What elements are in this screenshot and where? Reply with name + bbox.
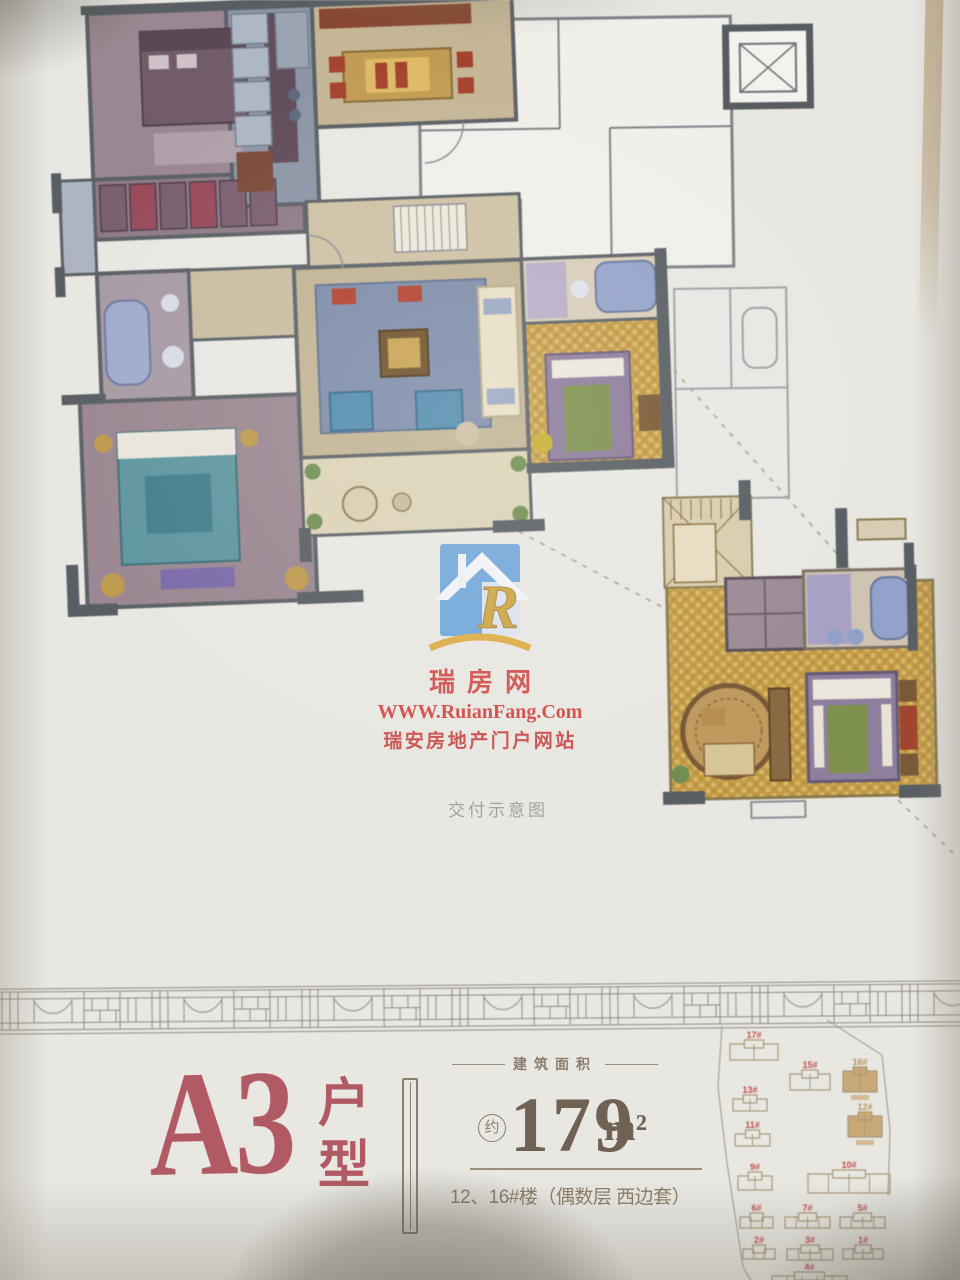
site-map-building: 16# <box>843 1057 877 1100</box>
horizontal-rule <box>470 1168 702 1170</box>
site-map-building-label: 7# <box>802 1203 812 1213</box>
site-map-building-label: 11# <box>745 1120 760 1130</box>
divider-column <box>402 1078 418 1234</box>
site-map-building-label: 1# <box>858 1235 868 1245</box>
site-map-building-label: 4# <box>804 1262 814 1272</box>
watermark-site-url: WWW.RuianFang.Com <box>366 701 594 724</box>
site-map-building: 1# <box>843 1235 883 1259</box>
dash-rule <box>452 1064 505 1065</box>
site-map-building: 7# <box>785 1203 830 1228</box>
floor-plan-drawing <box>0 0 960 900</box>
elevator-shaft-icon <box>725 27 810 106</box>
site-map-building-label: 9# <box>750 1162 760 1172</box>
watermark-tagline: 瑞安房地产门户网站 <box>366 726 594 753</box>
site-map-building: 13# <box>733 1085 767 1111</box>
watermark: R 瑞房网 WWW.RuianFang.Com 瑞安房地产门户网站 <box>366 542 594 753</box>
area-unit: m² <box>604 1106 647 1150</box>
site-map-building-label: 13# <box>742 1085 757 1095</box>
site-map-building: 4# <box>772 1262 847 1280</box>
site-map-building-label: 15# <box>802 1060 817 1070</box>
site-map-building: 11# <box>735 1120 770 1146</box>
svg-text:R: R <box>476 574 518 642</box>
dash-rule <box>605 1064 658 1065</box>
site-map-building: 9# <box>738 1162 772 1190</box>
site-map-building: 15# <box>790 1060 830 1090</box>
site-map: 17#15#16#13#12#11#9#10#6#7#5#2#3#1#4# <box>690 1020 960 1280</box>
site-map-building-label: 3# <box>805 1235 815 1245</box>
neighbour-rooms-outline <box>674 287 789 499</box>
ruianfang-logo-icon: R <box>428 542 532 658</box>
building-location-note: 12、16#楼（偶数层 西边套） <box>450 1182 690 1209</box>
site-map-building: 3# <box>787 1235 833 1260</box>
site-map-building-label: 12# <box>857 1102 872 1112</box>
site-map-building: 12# <box>848 1102 882 1145</box>
site-map-building-label: 2# <box>754 1235 764 1245</box>
site-map-building-label: 16# <box>852 1057 867 1067</box>
upper-floor-suite-plan <box>656 476 941 820</box>
area-section-header: 建筑面积 <box>452 1054 658 1074</box>
side-balcony <box>59 180 97 275</box>
site-map-building: 10# <box>808 1160 890 1193</box>
site-map-building: 2# <box>743 1235 775 1259</box>
watermark-site-name: 瑞房网 <box>366 662 594 699</box>
unit-type-label: 户 型 <box>318 1074 370 1199</box>
site-map-building-label: 6# <box>751 1203 761 1213</box>
site-map-building: 5# <box>840 1203 885 1228</box>
unit-name: A3 <box>148 1047 294 1200</box>
site-map-building-label: 17# <box>746 1030 761 1040</box>
poster-photo: R 瑞房网 WWW.RuianFang.Com 瑞安房地产门户网站 交付示意图 <box>0 0 960 1280</box>
stairs-icon <box>393 204 467 253</box>
site-map-building-label: 10# <box>841 1160 856 1170</box>
site-map-building: 6# <box>740 1203 773 1228</box>
site-map-building-label: 5# <box>857 1203 867 1213</box>
site-map-building: 17# <box>730 1030 778 1060</box>
approx-badge: 约 <box>478 1114 506 1142</box>
plan-caption: 交付示意图 <box>448 796 548 821</box>
